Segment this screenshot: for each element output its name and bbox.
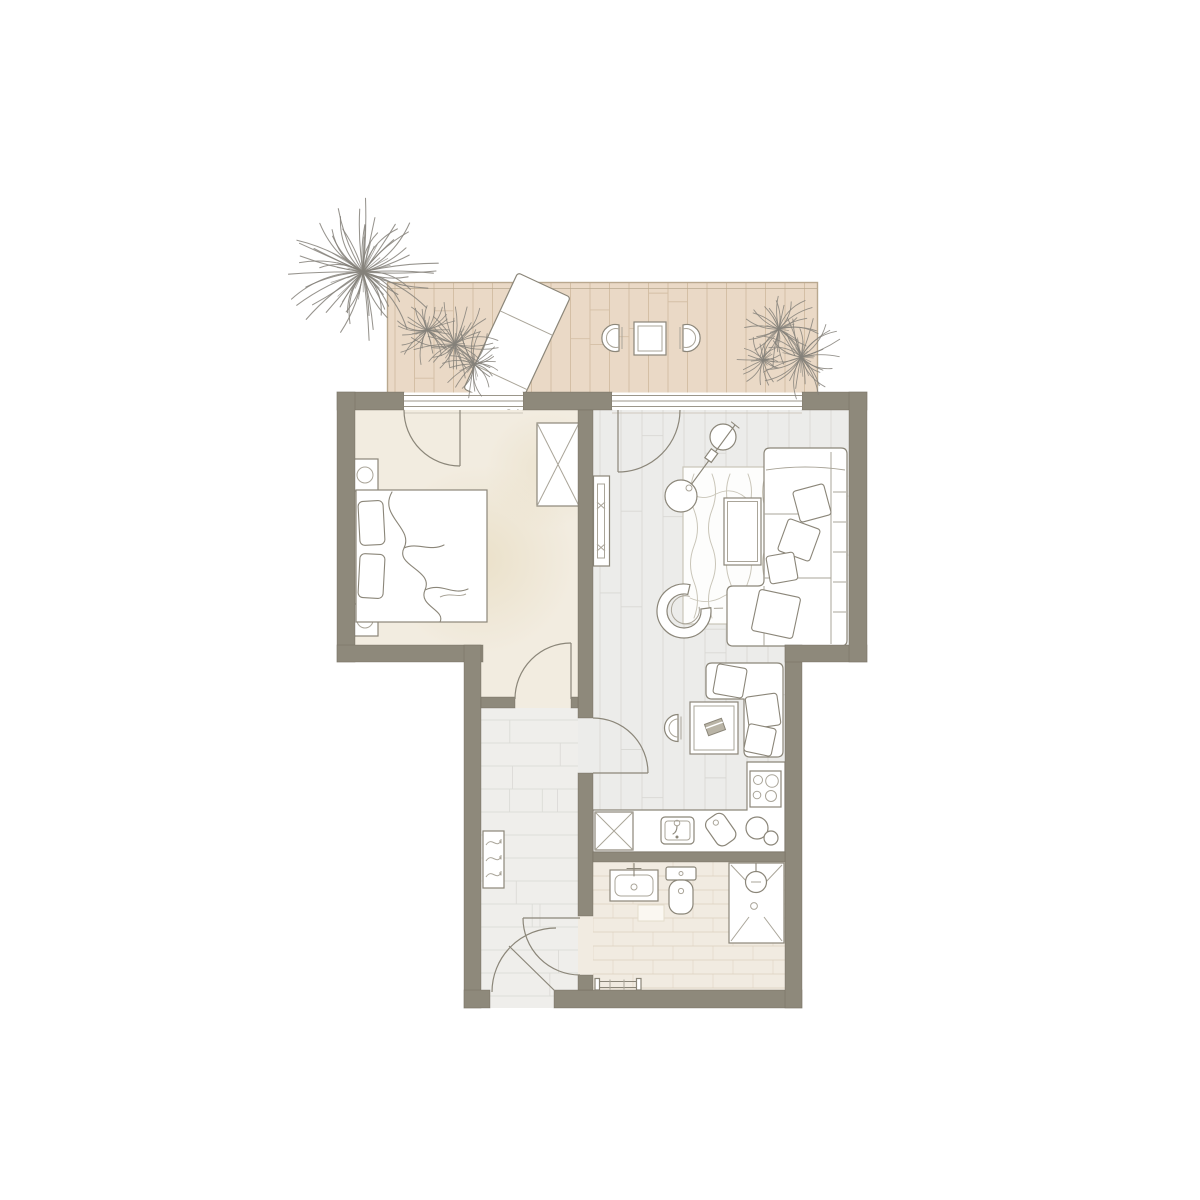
cooktop [750, 771, 781, 807]
cushion [751, 589, 801, 639]
hallway [483, 831, 504, 888]
floor-plan [0, 0, 1200, 1200]
bathroom-door-threshold [578, 916, 593, 975]
tv-sideboard [594, 476, 610, 566]
wardrobe [537, 423, 579, 506]
cafe-chair-right [680, 325, 700, 352]
cushion [713, 664, 748, 699]
cushion [766, 552, 798, 584]
drain [676, 836, 679, 839]
bistro-table [634, 322, 666, 355]
wall-segment [464, 990, 490, 1008]
shower [729, 863, 784, 943]
cafe-chair-left [602, 325, 622, 352]
radiator [483, 831, 504, 888]
wall-segment [523, 392, 612, 410]
bedroom-door-threshold [515, 697, 571, 708]
dining-table [690, 702, 738, 754]
wall-segment [337, 392, 355, 662]
base-cabinet [595, 812, 633, 850]
wall-segment [554, 990, 802, 1008]
bath-mat [638, 905, 664, 921]
floor-plan-page [0, 0, 1200, 1200]
wall-segment [785, 645, 802, 1008]
wall-segment [578, 410, 593, 718]
window-living [612, 393, 802, 414]
coffee-table [724, 498, 761, 565]
wall-segment [593, 852, 785, 862]
double-bed [356, 490, 487, 622]
wall-segment [578, 773, 593, 916]
cushion [743, 723, 776, 756]
toilet [666, 867, 696, 914]
living-door-threshold [578, 718, 593, 773]
wall-segment [481, 697, 515, 708]
wall-segment [337, 645, 483, 662]
nightstand-top [352, 459, 378, 491]
wall-segment [849, 392, 867, 662]
pillow [358, 500, 385, 545]
pillow [358, 553, 385, 598]
wall-segment [571, 697, 578, 708]
wall-segment [464, 645, 481, 1008]
wall-segment [578, 975, 593, 990]
kitchen-sink [661, 817, 694, 844]
window-bedroom [404, 393, 523, 414]
